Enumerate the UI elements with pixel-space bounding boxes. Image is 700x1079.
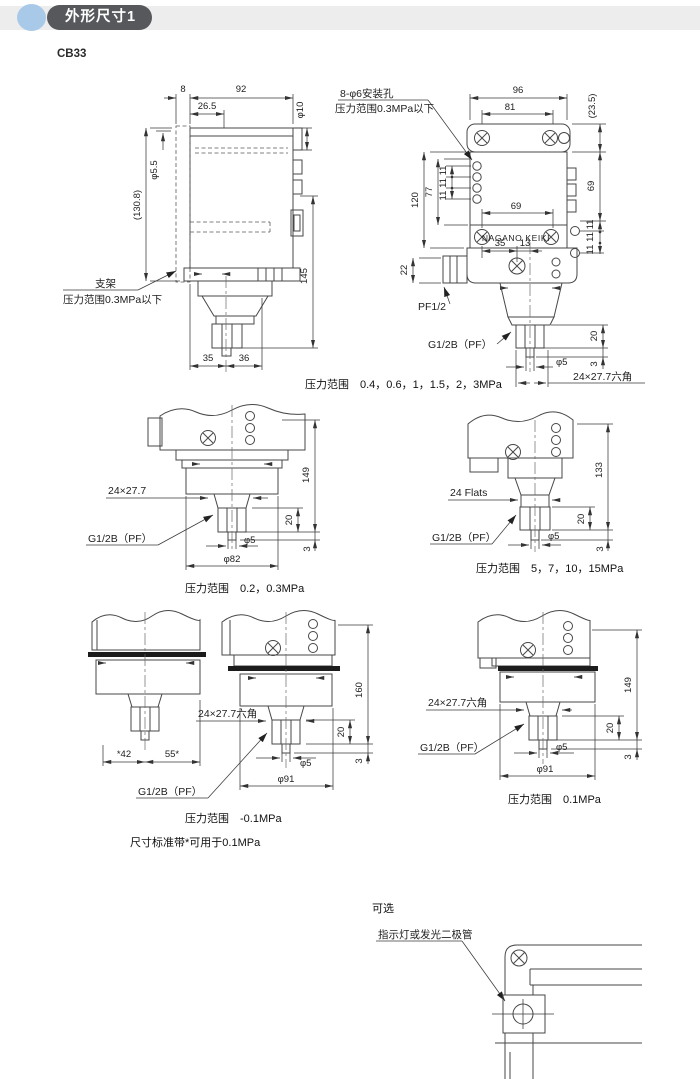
label-pf12: PF1/2	[418, 301, 446, 313]
dim-height-20-v23: 20	[284, 515, 295, 526]
dim-phi5-5: φ5.5	[149, 160, 160, 179]
dim-width-42: *42	[117, 749, 131, 760]
caption-pressure-range-neg01: 压力范围 -0.1MPa	[185, 811, 282, 825]
dim-height-20-vn01: 20	[336, 727, 347, 738]
dim-width-26-5: 26.5	[198, 101, 217, 112]
drawing-0-2-0-3mpa: 149 20 3 φ5 φ82 24×27.7 G1/2B（PF） 压力范围 0…	[86, 404, 320, 595]
dim-phi5-vn01: φ5	[300, 758, 311, 769]
label-g12b-v23: G1/2B（PF）	[88, 533, 152, 545]
dim-width-13: 13	[520, 238, 531, 249]
dim-width-8: 8	[180, 84, 185, 95]
dim-phi5-v01: φ5	[556, 742, 567, 753]
label-hex-fv: 24×27.7六角	[573, 371, 632, 383]
brand-text: NAGANO KEIKI	[482, 233, 550, 243]
dim-pitch-right: 11 11 11	[585, 220, 596, 255]
dim-height-149-v23: 149	[301, 467, 312, 483]
label-mount-holes: 8-φ6安装孔	[340, 87, 394, 100]
datasheet-page: 外形尺寸1 CB33	[0, 0, 700, 1079]
label-optional: 可选	[372, 902, 394, 915]
dim-phi82: φ82	[224, 554, 241, 565]
dim-phi91-v01: φ91	[537, 764, 554, 775]
label-bracket: 支架	[95, 278, 116, 290]
dim-height-3-fv: 3	[589, 361, 600, 366]
dim-width-92: 92	[236, 84, 247, 95]
label-bracket-note: 压力范围0.3MPa以下	[63, 293, 162, 306]
dim-height-23-5: (23.5)	[587, 94, 598, 119]
label-g12b-v515: G1/2B（PF）	[432, 532, 496, 544]
dim-height-133: 133	[594, 462, 605, 478]
label-hex-v23: 24×27.7	[108, 485, 146, 497]
dim-phi5-fv: φ5	[556, 357, 567, 368]
dim-height-20-v515: 20	[576, 514, 587, 525]
drawing-neg01mpa-left: *42 55*	[88, 610, 206, 766]
dim-height-3-v01: 3	[623, 754, 634, 759]
dim-height-149-v01: 149	[623, 677, 634, 693]
dim-width-69: 69	[511, 201, 522, 212]
label-hex-v01: 24×27.7六角	[428, 697, 487, 709]
dim-phi10: φ10	[295, 102, 306, 119]
drawing-front-view: NAGANO KEIKI 96	[305, 85, 645, 391]
dim-width-35-fv: 35	[495, 238, 506, 249]
dim-pitch-left: 11 11 11	[438, 166, 449, 201]
dim-width-96: 96	[513, 85, 524, 96]
drawing-01mpa: 149 20 3 φ5 φ91 24×27.7六角 G1/2B（PF） 压力范围…	[418, 610, 642, 806]
dim-height-160: 160	[354, 682, 365, 698]
label-indicator-led: 指示灯或发光二极管	[378, 928, 473, 941]
note-standard-band: 尺寸标准带*可用于0.1MPa	[130, 835, 261, 849]
dim-width-81: 81	[505, 102, 516, 113]
drawing-optional-indicator: 可选 指示灯或发光二极管	[372, 902, 642, 1079]
dim-phi91-vn01: φ91	[278, 774, 295, 785]
drawing-side-view: 8 92 26.5 φ10 φ5.5 (130.8) 145 35	[63, 84, 318, 372]
label-g12b-vn01: G1/2B（PF）	[138, 786, 202, 798]
dim-height-130-8: (130.8)	[132, 190, 143, 220]
caption-pressure-range-5-15: 压力范围 5，7，10，15MPa	[476, 561, 624, 575]
dim-width-36: 36	[239, 353, 250, 364]
label-g12b-v01: G1/2B（PF）	[420, 742, 484, 754]
drawing-neg01mpa-main: 160 20 3 φ5 φ91 24×27.7六角 G1/2B（PF） 压力范围…	[130, 610, 373, 849]
dim-width-55: 55*	[165, 749, 180, 760]
dim-height-20-fv: 20	[589, 331, 600, 342]
label-24flats: 24 Flats	[450, 487, 487, 499]
label-hex-vn01: 24×27.7六角	[198, 708, 257, 720]
dim-height-3-v515: 3	[595, 546, 606, 551]
dim-height-3-vn01: 3	[354, 758, 365, 763]
label-mount-holes-note: 压力范围0.3MPa以下	[335, 102, 434, 115]
label-g12b-fv: G1/2B（PF）	[428, 339, 492, 351]
dim-width-35: 35	[203, 353, 214, 364]
dim-height-69: 69	[586, 181, 597, 192]
technical-drawings: 8 92 26.5 φ10 φ5.5 (130.8) 145 35	[0, 0, 700, 1079]
dim-height-77: 77	[424, 187, 435, 198]
dim-height-120: 120	[410, 192, 421, 208]
dim-phi5-v515: φ5	[548, 531, 559, 542]
dim-height-20-v01: 20	[605, 723, 616, 734]
caption-pressure-range-01: 压力范围 0.1MPa	[508, 792, 602, 806]
dim-phi5-v23: φ5	[244, 535, 255, 546]
dim-height-3-v23: 3	[302, 546, 313, 551]
caption-pressure-range-main: 压力范围 0.4，0.6，1，1.5，2，3MPa	[305, 377, 503, 391]
caption-pressure-range-02-03: 压力范围 0.2，0.3MPa	[185, 581, 305, 595]
drawing-5-15mpa: 133 20 3 φ5 24 Flats G1/2B（PF） 压力范围 5，7，…	[430, 412, 624, 575]
dim-height-145: 145	[299, 268, 310, 284]
dim-height-22: 22	[399, 265, 410, 276]
